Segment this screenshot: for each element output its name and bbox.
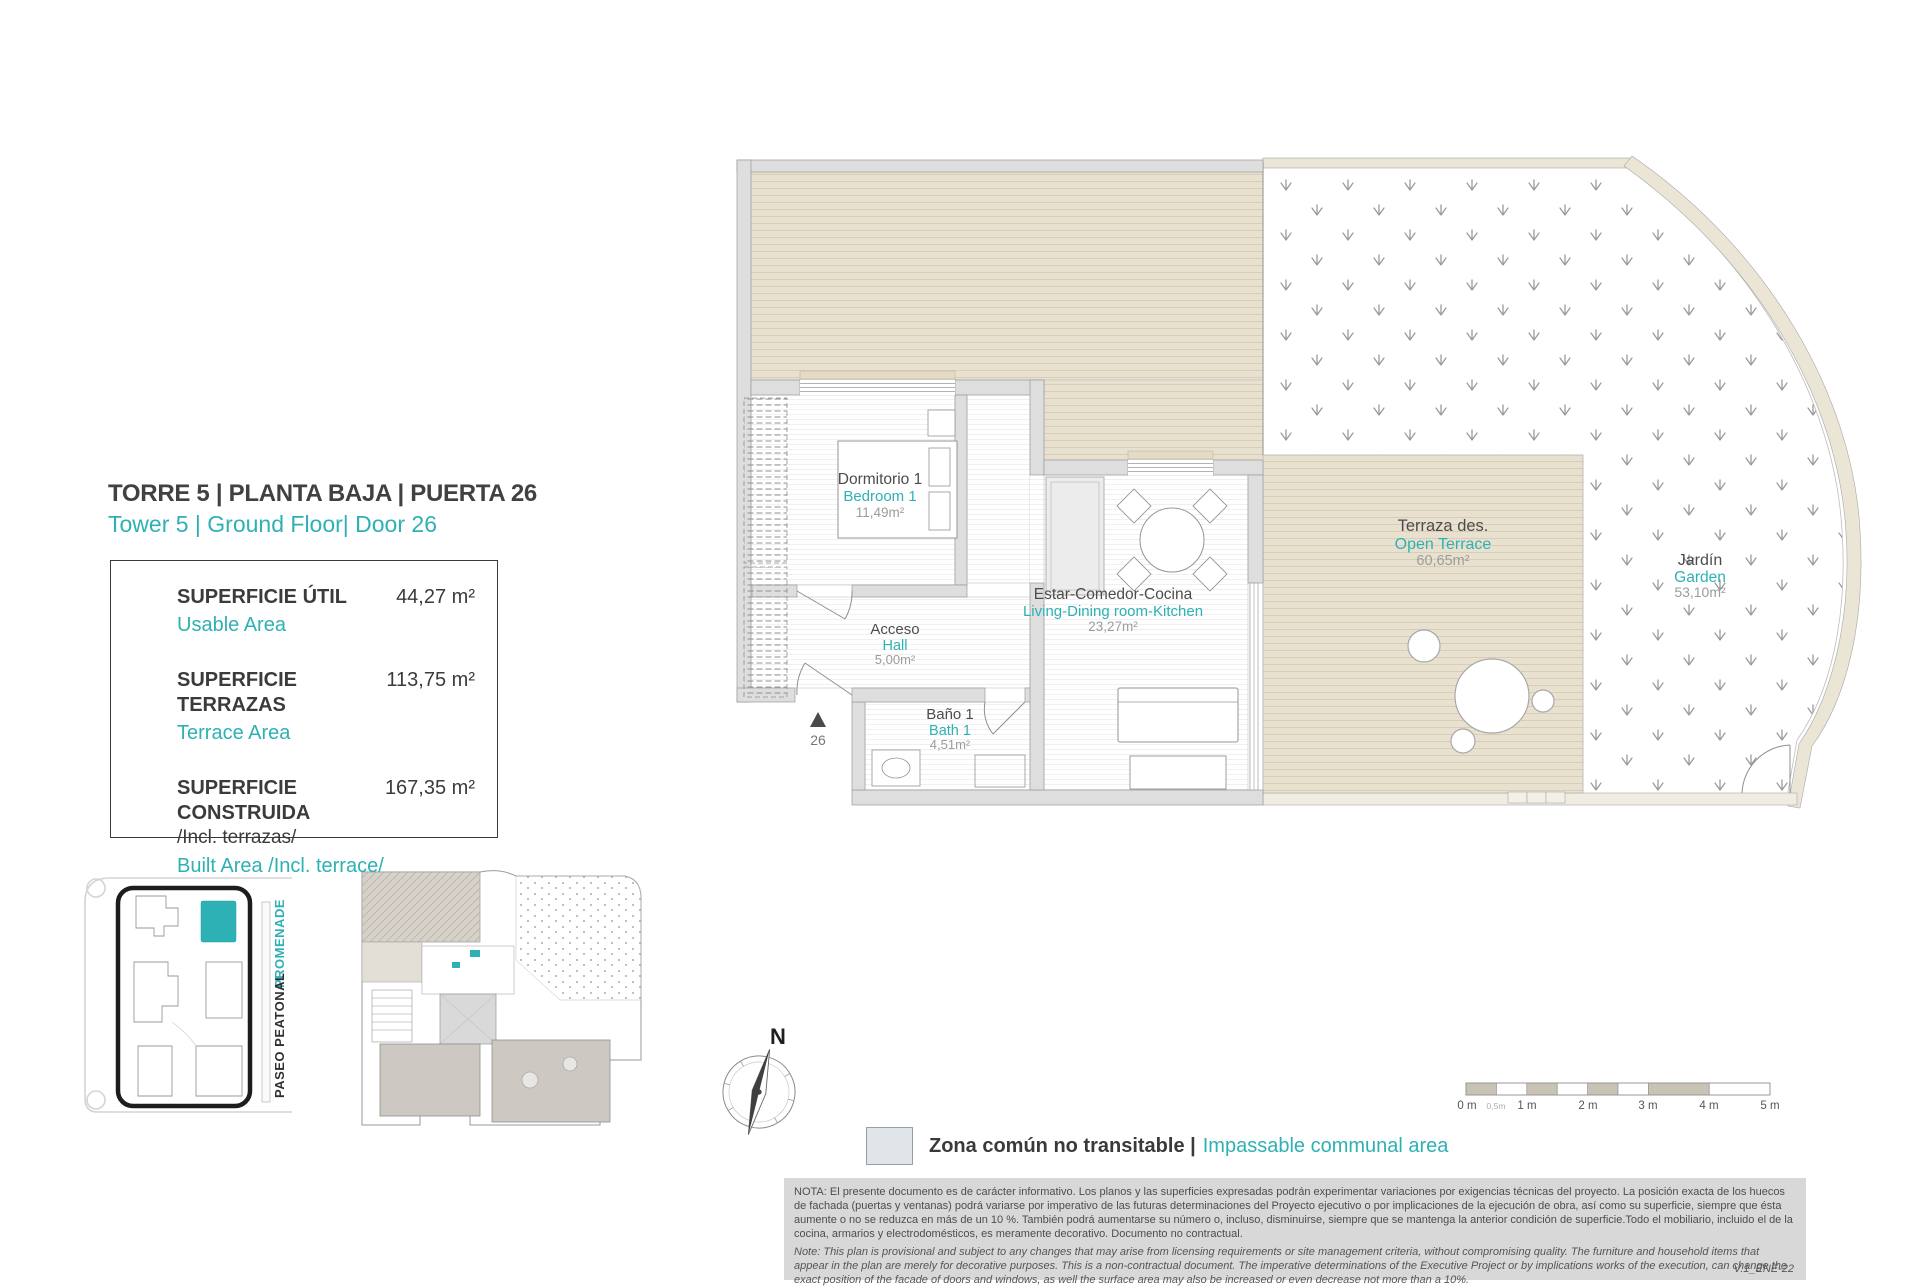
garden-steps <box>1508 792 1565 803</box>
svg-text:3 m: 3 m <box>1638 1100 1657 1112</box>
deck-area-top <box>751 172 1263 380</box>
garden-top-wall <box>1263 158 1632 168</box>
area-summary-table: SUPERFICIE ÚTIL Usable Area 44,27 m² SUP… <box>110 560 498 838</box>
svg-text:2 m: 2 m <box>1578 1100 1597 1112</box>
note-spanish: NOTA: El presente documento es de caráct… <box>794 1185 1794 1241</box>
living-window <box>1128 451 1213 475</box>
built-area-value: 167,35 m² <box>385 776 475 800</box>
title-spanish: TORRE 5 | PLANTA BAJA | PUERTA 26 <box>108 480 537 508</box>
svg-text:5 m: 5 m <box>1760 1100 1779 1112</box>
north-arrow-icon: N <box>713 1024 804 1143</box>
entrance-arrow-icon <box>810 712 826 727</box>
svg-text:4,51m²: 4,51m² <box>930 737 971 752</box>
page-title: TORRE 5 | PLANTA BAJA | PUERTA 26 Tower … <box>108 480 537 538</box>
svg-text:Jardín: Jardín <box>1678 552 1722 569</box>
version-label: V.1_ENE-22 <box>1734 1263 1794 1275</box>
facade-shutter-upper <box>744 398 787 563</box>
legend-label-en: Impassable communal area <box>1203 1135 1449 1158</box>
coffee-table <box>1130 756 1226 789</box>
svg-text:23,27m²: 23,27m² <box>1088 619 1138 634</box>
facade-shutter-lower <box>744 567 787 697</box>
terrace-area-value: 113,75 m² <box>386 668 475 692</box>
paseo-peatonal-label: PASEO PEATONAL <box>272 973 287 1098</box>
terrace-area-label-es: SUPERFICIE TERRAZAS <box>177 668 386 718</box>
built-area-label-en: Built Area /Incl. terrace/ <box>177 853 385 879</box>
area-row-built: SUPERFICIE CONSTRUIDA /Incl. terrazas/ B… <box>177 776 475 879</box>
built-area-label-es: SUPERFICIE CONSTRUIDA <box>177 776 385 826</box>
area-row-terrace: SUPERFICIE TERRAZAS Terrace Area 113,75 … <box>177 668 475 746</box>
scale-bar: 0 m 0,5m 1 m 2 m 3 m 4 m 5 m <box>1457 1083 1779 1112</box>
legend-swatch <box>866 1127 913 1165</box>
kitchen-passage-floor <box>1030 475 1044 583</box>
svg-text:N: N <box>770 1024 786 1049</box>
area-row-usable: SUPERFICIE ÚTIL Usable Area 44,27 m² <box>177 585 475 638</box>
svg-text:0,5m: 0,5m <box>1487 1101 1506 1111</box>
deck-area-ext <box>1044 380 1263 460</box>
open-terrace-area <box>1263 455 1583 793</box>
usable-area-label-en: Usable Area <box>177 612 347 638</box>
svg-text:60,65m²: 60,65m² <box>1416 553 1469 569</box>
svg-text:Dormitorio 1: Dormitorio 1 <box>838 471 922 488</box>
entrance-door-marker: 26 <box>810 712 826 748</box>
terrace-area-label-en: Terrace Area <box>177 720 386 746</box>
kitchen-counter <box>1046 477 1104 595</box>
svg-text:53,10m²: 53,10m² <box>1674 584 1726 600</box>
svg-text:11,49m²: 11,49m² <box>856 505 905 520</box>
svg-text:Living-Dining room-Kitchen: Living-Dining room-Kitchen <box>1023 603 1203 620</box>
promenade-strip <box>262 902 270 1102</box>
title-english: Tower 5 | Ground Floor| Door 26 <box>108 511 537 538</box>
key-floor-plan <box>362 871 641 1125</box>
legend: Zona común no transitable | Impassable c… <box>866 1127 1448 1165</box>
terrace-sliding-door <box>1250 583 1258 790</box>
svg-text:Terraza des.: Terraza des. <box>1398 517 1489 535</box>
svg-text:Bedroom 1: Bedroom 1 <box>843 488 916 505</box>
svg-text:Baño 1: Baño 1 <box>926 706 974 723</box>
svg-text:26: 26 <box>810 732 826 748</box>
note-english: Note: This plan is provisional and subje… <box>794 1245 1794 1287</box>
svg-text:0 m: 0 m <box>1457 1100 1476 1112</box>
usable-area-label-es: SUPERFICIE ÚTIL <box>177 585 347 610</box>
bedroom-window <box>800 371 955 395</box>
svg-text:Acceso: Acceso <box>870 621 919 638</box>
legend-label-es: Zona común no transitable | <box>929 1135 1196 1158</box>
svg-text:5,00m²: 5,00m² <box>875 652 916 667</box>
main-floor-plan: Dormitorio 1 Bedroom 1 11,49m² Acceso Ha… <box>737 156 1861 808</box>
svg-text:Open Terrace: Open Terrace <box>1395 536 1492 553</box>
svg-text:Estar-Comedor-Cocina: Estar-Comedor-Cocina <box>1034 586 1193 603</box>
kitchen-strip-floor <box>967 395 1030 583</box>
room-label-bath1: Baño 1 Bath 1 4,51m² <box>926 706 974 752</box>
key-site-plan: PROMENADE PASEO PEATONAL <box>85 878 292 1112</box>
highlighted-tower <box>201 901 236 942</box>
svg-text:1 m: 1 m <box>1517 1100 1536 1112</box>
notes-panel: NOTA: El presente documento es de caráct… <box>784 1178 1806 1280</box>
usable-area-value: 44,27 m² <box>396 585 475 609</box>
svg-text:4 m: 4 m <box>1699 1100 1718 1112</box>
built-area-note: /Incl. terrazas/ <box>177 826 385 851</box>
sofa <box>1118 688 1238 742</box>
room-label-garden: Jardín Garden 53,10m² <box>1674 552 1726 600</box>
